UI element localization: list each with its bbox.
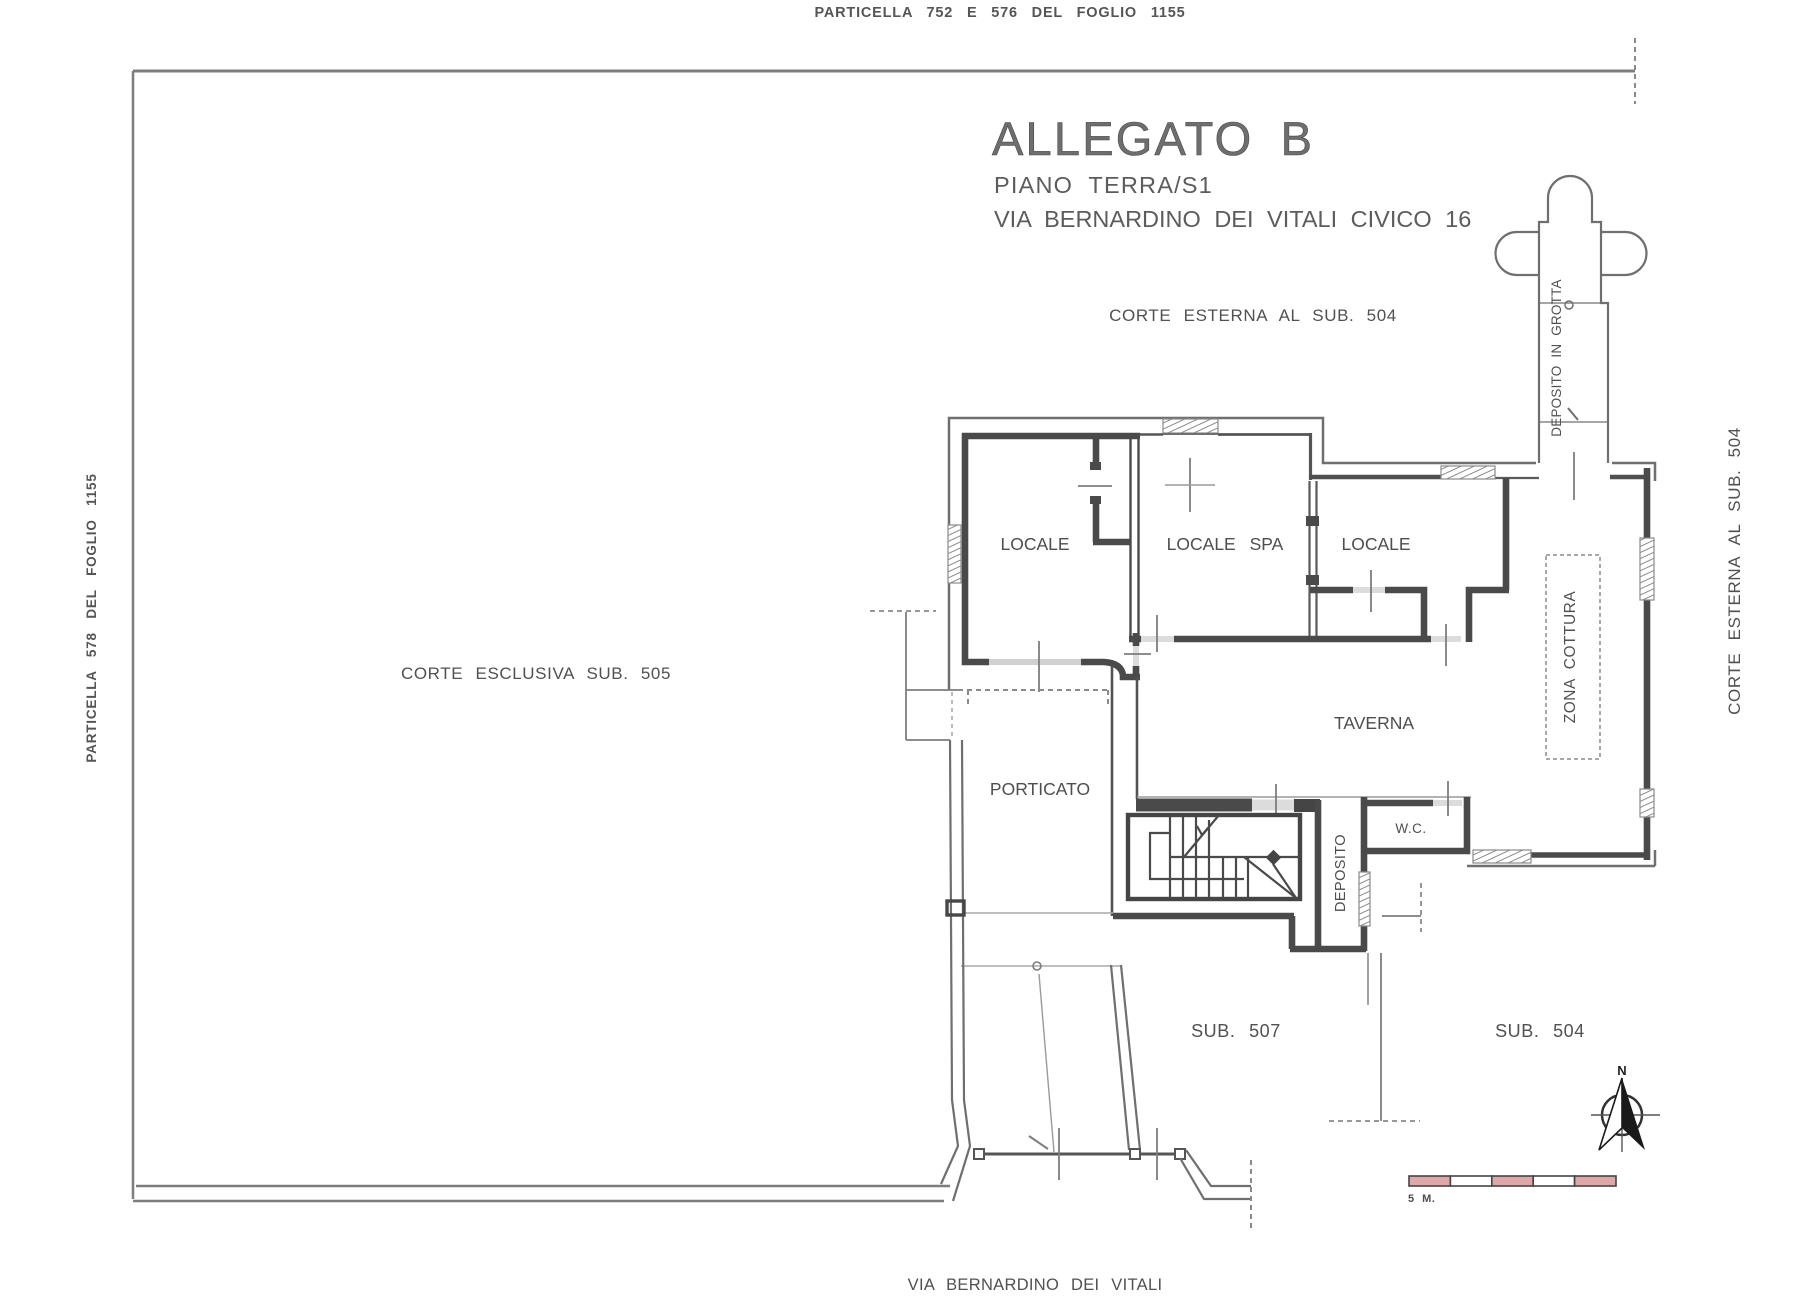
- svg-text:CORTE ESCLUSIVA SUB. 505: CORTE ESCLUSIVA SUB. 505: [401, 664, 671, 683]
- svg-text:SUB. 504: SUB. 504: [1495, 1021, 1585, 1041]
- svg-text:PARTICELLA 578 DEL FOGLIO 1155: PARTICELLA 578 DEL FOGLIO 1155: [84, 473, 99, 762]
- svg-text:W.C.: W.C.: [1395, 821, 1426, 836]
- svg-text:PARTICELLA 752 E 576 DEL FOGLI: PARTICELLA 752 E 576 DEL FOGLIO 1155: [814, 5, 1185, 21]
- svg-text:VIA BERNARDINO DEI VITALI: VIA BERNARDINO DEI VITALI: [908, 1276, 1163, 1294]
- svg-text:SUB. 507: SUB. 507: [1191, 1021, 1281, 1041]
- svg-text:ZONA COTTURA: ZONA COTTURA: [1562, 591, 1579, 724]
- svg-text:LOCALE: LOCALE: [1000, 534, 1069, 554]
- svg-text:PORTICATO: PORTICATO: [990, 779, 1090, 799]
- svg-text:TAVERNA: TAVERNA: [1334, 713, 1414, 733]
- svg-text:5 M.: 5 M.: [1408, 1193, 1435, 1205]
- svg-text:LOCALE: LOCALE: [1341, 534, 1410, 554]
- svg-text:LOCALE SPA: LOCALE SPA: [1167, 534, 1284, 554]
- svg-text:ALLEGATO B: ALLEGATO B: [992, 112, 1314, 165]
- svg-text:VIA BERNARDINO DEI VITALI CIVI: VIA BERNARDINO DEI VITALI CIVICO 16: [994, 206, 1471, 232]
- svg-text:N: N: [1617, 1063, 1626, 1078]
- svg-text:DEPOSITO IN GROTTA: DEPOSITO IN GROTTA: [1549, 279, 1564, 436]
- svg-text:CORTE ESTERNA AL SUB. 504: CORTE ESTERNA AL SUB. 504: [1725, 427, 1744, 715]
- svg-text:PIANO TERRA/S1: PIANO TERRA/S1: [994, 172, 1213, 198]
- svg-text:CORTE ESTERNA AL SUB. 504: CORTE ESTERNA AL SUB. 504: [1109, 306, 1397, 325]
- svg-text:DEPOSITO: DEPOSITO: [1333, 834, 1349, 912]
